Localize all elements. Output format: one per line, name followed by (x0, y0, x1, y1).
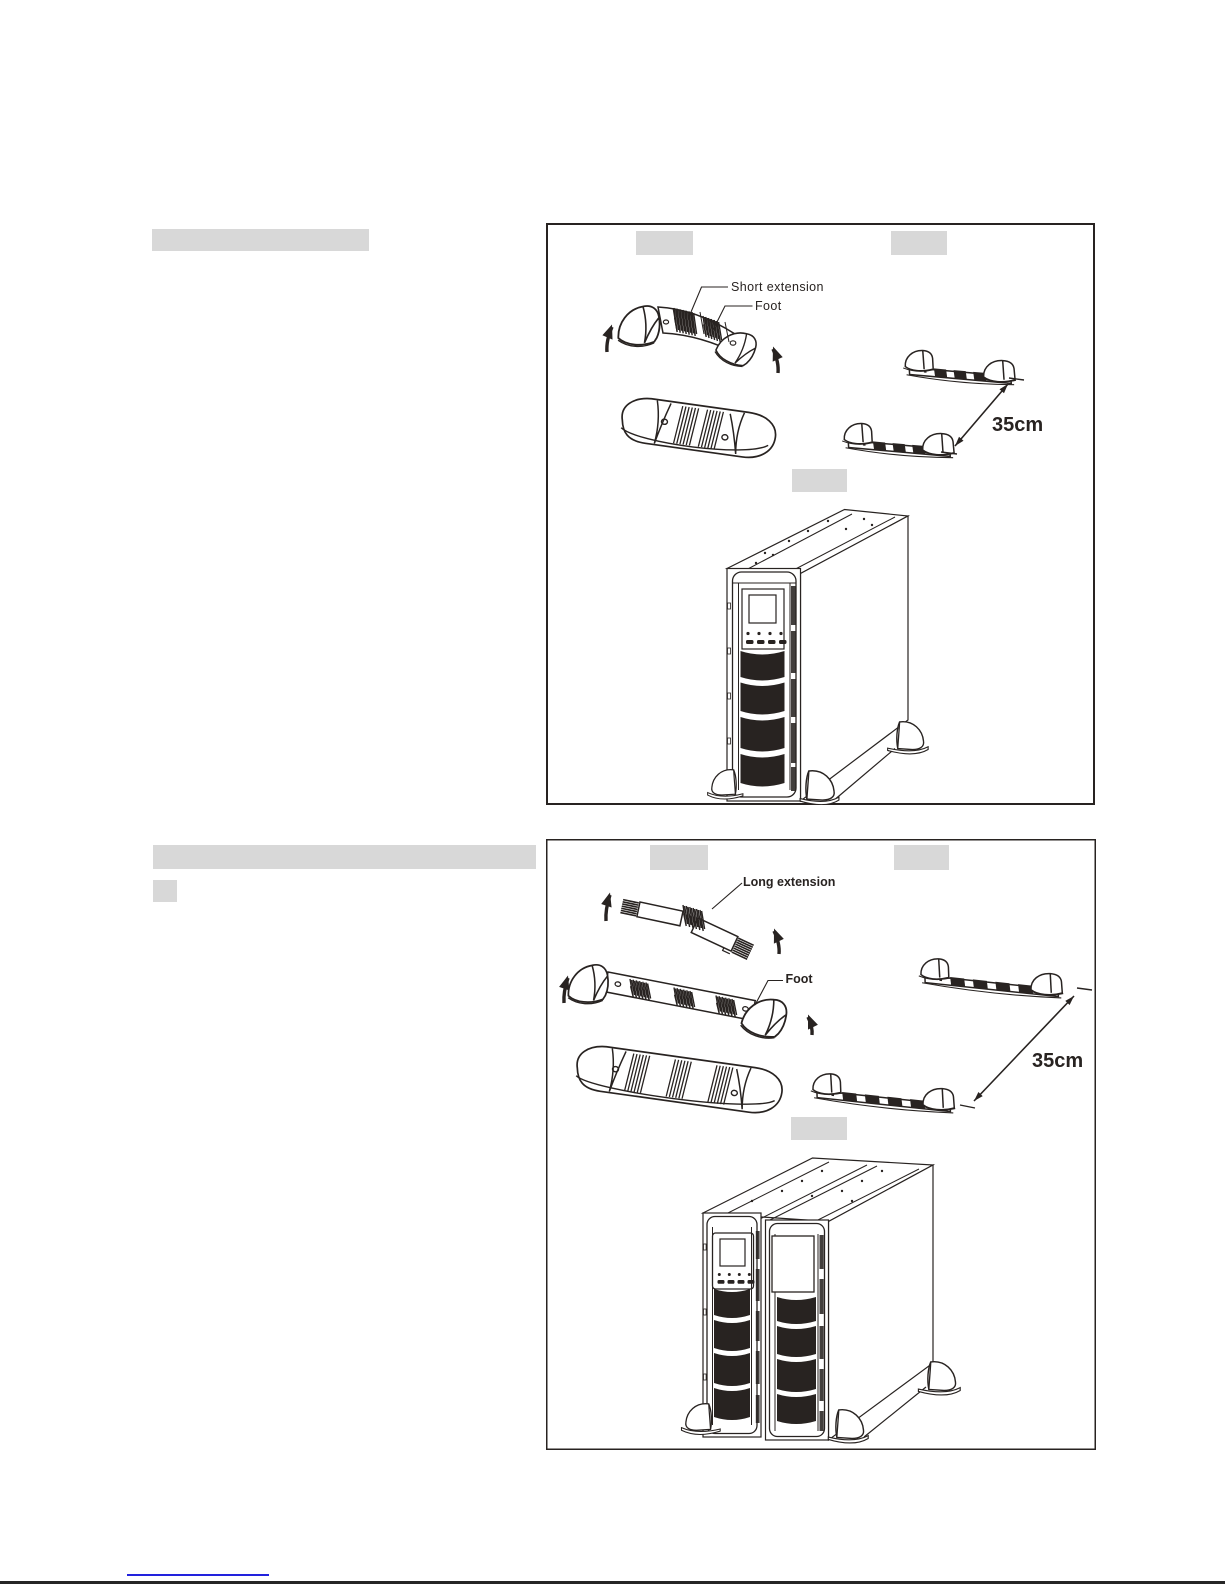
svg-text:Foot: Foot (786, 972, 814, 986)
svg-text:Foot: Foot (755, 299, 782, 313)
svg-text:Short extension: Short extension (731, 280, 824, 294)
svg-text:Long extension: Long extension (743, 875, 835, 889)
svg-text:35cm: 35cm (992, 414, 1043, 436)
svg-text:35cm: 35cm (1032, 1050, 1083, 1072)
